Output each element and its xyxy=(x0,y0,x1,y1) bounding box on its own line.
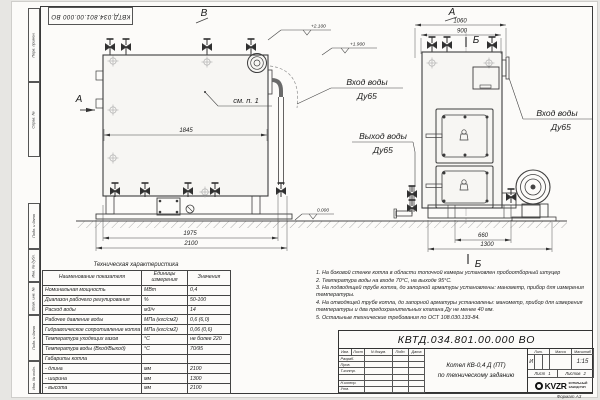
title-block-right: Лит. Масса Масштаб И 1:15 Лист1 Листов2 xyxy=(528,349,594,393)
inlet-left-label: Вход воды Ду65 xyxy=(297,77,403,104)
table-row: Габариты котла xyxy=(43,354,231,364)
ground-line xyxy=(76,221,567,228)
dim-1060: 1060 xyxy=(453,19,467,25)
view-a-arrow-label: А xyxy=(75,94,83,105)
svg-text:Вход воды: Вход воды xyxy=(346,77,388,87)
table-row: Гидравлическое сопротивление котлаМПа (к… xyxy=(43,325,231,335)
spec-col-value: Значения xyxy=(188,271,231,286)
col-date: Дата xyxy=(409,349,425,356)
kvzr-logo-text: KVZR xyxy=(545,381,567,391)
table-row: Температура уходящих газов°Сне более 220 xyxy=(43,334,231,344)
blower-fan xyxy=(502,170,556,221)
valve-icon xyxy=(428,37,497,52)
svg-text:Ду65: Ду65 xyxy=(356,91,377,101)
table-row: Температура воды (Вход/Выход)°С70/95 xyxy=(43,344,231,354)
inlet-elbow-pipe xyxy=(268,66,298,185)
table-row: - ширинамм1300 xyxy=(43,374,231,384)
table-row: Диапазон рабочего регулирования%50-100 xyxy=(43,295,231,305)
section-b-bottom-label: Б xyxy=(475,259,482,270)
table-row: - высотамм2100 xyxy=(43,383,231,393)
boiler-base xyxy=(96,196,292,219)
dim-1300: 1300 xyxy=(480,242,494,248)
scale-value: 1:15 xyxy=(572,355,594,370)
document-name: Котел КВ-0,4 Д (ПТ) по техническому зада… xyxy=(425,349,528,393)
elev-top: +2.100 xyxy=(311,24,326,30)
document-designation: КВТД.034.801.00.000 ВО xyxy=(339,331,594,349)
sheets-total: Листов2 xyxy=(558,370,594,378)
col-sign: Подп. xyxy=(393,349,409,356)
svg-text:Ду65: Ду65 xyxy=(550,122,571,132)
note-item: 2. Температура воды на входе 70°С, на вы… xyxy=(316,278,593,285)
note-item: 5. Остальные технические требования по О… xyxy=(316,315,593,322)
table-row: Номинальная мощностьМВт0,4 xyxy=(43,286,231,296)
spec-table: Наименование показателя Единицы измерени… xyxy=(42,270,231,394)
dim-660: 660 xyxy=(478,233,489,239)
revision-grid: Изм. Лист N докум. Подп. Дата Разраб. Пр… xyxy=(339,349,425,393)
svg-text:Ду65: Ду65 xyxy=(372,145,393,155)
spec-header-row: Наименование показателя Единицы измерени… xyxy=(43,271,231,286)
kvzr-logo-icon xyxy=(535,382,543,390)
note-item: 3. На подводящей трубе котла, до запорно… xyxy=(316,285,593,299)
spec-col-unit: Единицы измерения xyxy=(142,271,188,286)
drawing-sheet-page: Перв. примен. Справ. № Подп. и дата Инв.… xyxy=(0,0,600,400)
table-row: - длинамм2100 xyxy=(43,364,231,374)
svg-text:Вход воды: Вход воды xyxy=(536,108,578,118)
dim-1845: 1845 xyxy=(179,128,193,134)
title-block: КВТД.034.801.00.000 ВО Изм. Лист N докум… xyxy=(338,330,593,393)
col-list: Лист xyxy=(352,349,365,356)
svg-text:см. п. 1: см. п. 1 xyxy=(233,96,259,105)
elev-zero: 0.000 xyxy=(317,208,329,214)
company-name: КОТЕЛЬНЫЙ ЗАВОД РЭП xyxy=(569,382,588,389)
sheet-number: Лист1 xyxy=(528,370,558,378)
elev-mid: +1.900 xyxy=(350,42,365,48)
inlet-right-label: Вход воды Ду65 xyxy=(509,78,592,132)
table-row: Рабочее давление водыМПа (кгс/см2)0,6 (6… xyxy=(43,315,231,325)
lit-value: И xyxy=(528,355,535,370)
spec-table-title: Техническая характеристика xyxy=(42,262,230,268)
format-label: Формат А3 xyxy=(545,394,593,399)
note-item: 1. На боковой стенке котла в области топ… xyxy=(316,270,593,277)
view-b-label: В xyxy=(201,8,208,19)
table-row: Расход водым3/ч14 xyxy=(43,305,231,315)
spec-col-name: Наименование показателя xyxy=(43,271,142,286)
outlet-pipe-assembly xyxy=(394,186,417,218)
side-view-drawing xyxy=(96,39,298,219)
view-a-label: А xyxy=(448,7,456,18)
company-logo: KVZR КОТЕЛЬНЫЙ ЗАВОД РЭП xyxy=(528,378,594,393)
note-item: 4. На отводящей трубе котла, до запорной… xyxy=(316,300,593,314)
section-b-top-label: Б xyxy=(473,35,480,46)
outlet-label: Выход воды Ду65 xyxy=(352,131,415,186)
row-utv: Утв. xyxy=(339,387,365,393)
technical-notes: 1. На боковой стенке котла в области топ… xyxy=(316,270,593,322)
inlet-flange xyxy=(502,57,509,79)
dim-900: 900 xyxy=(457,29,468,35)
front-view-drawing xyxy=(394,30,556,224)
dim-2100: 2100 xyxy=(183,241,198,247)
mass-value xyxy=(550,355,572,370)
valve-icon xyxy=(106,39,256,55)
dim-1975: 1975 xyxy=(183,231,197,237)
svg-text:Выход воды: Выход воды xyxy=(359,131,408,141)
col-doc: N докум. xyxy=(365,349,393,356)
technical-characteristics: Техническая характеристика Наименование … xyxy=(42,262,230,394)
col-izm: Изм. xyxy=(339,349,352,356)
